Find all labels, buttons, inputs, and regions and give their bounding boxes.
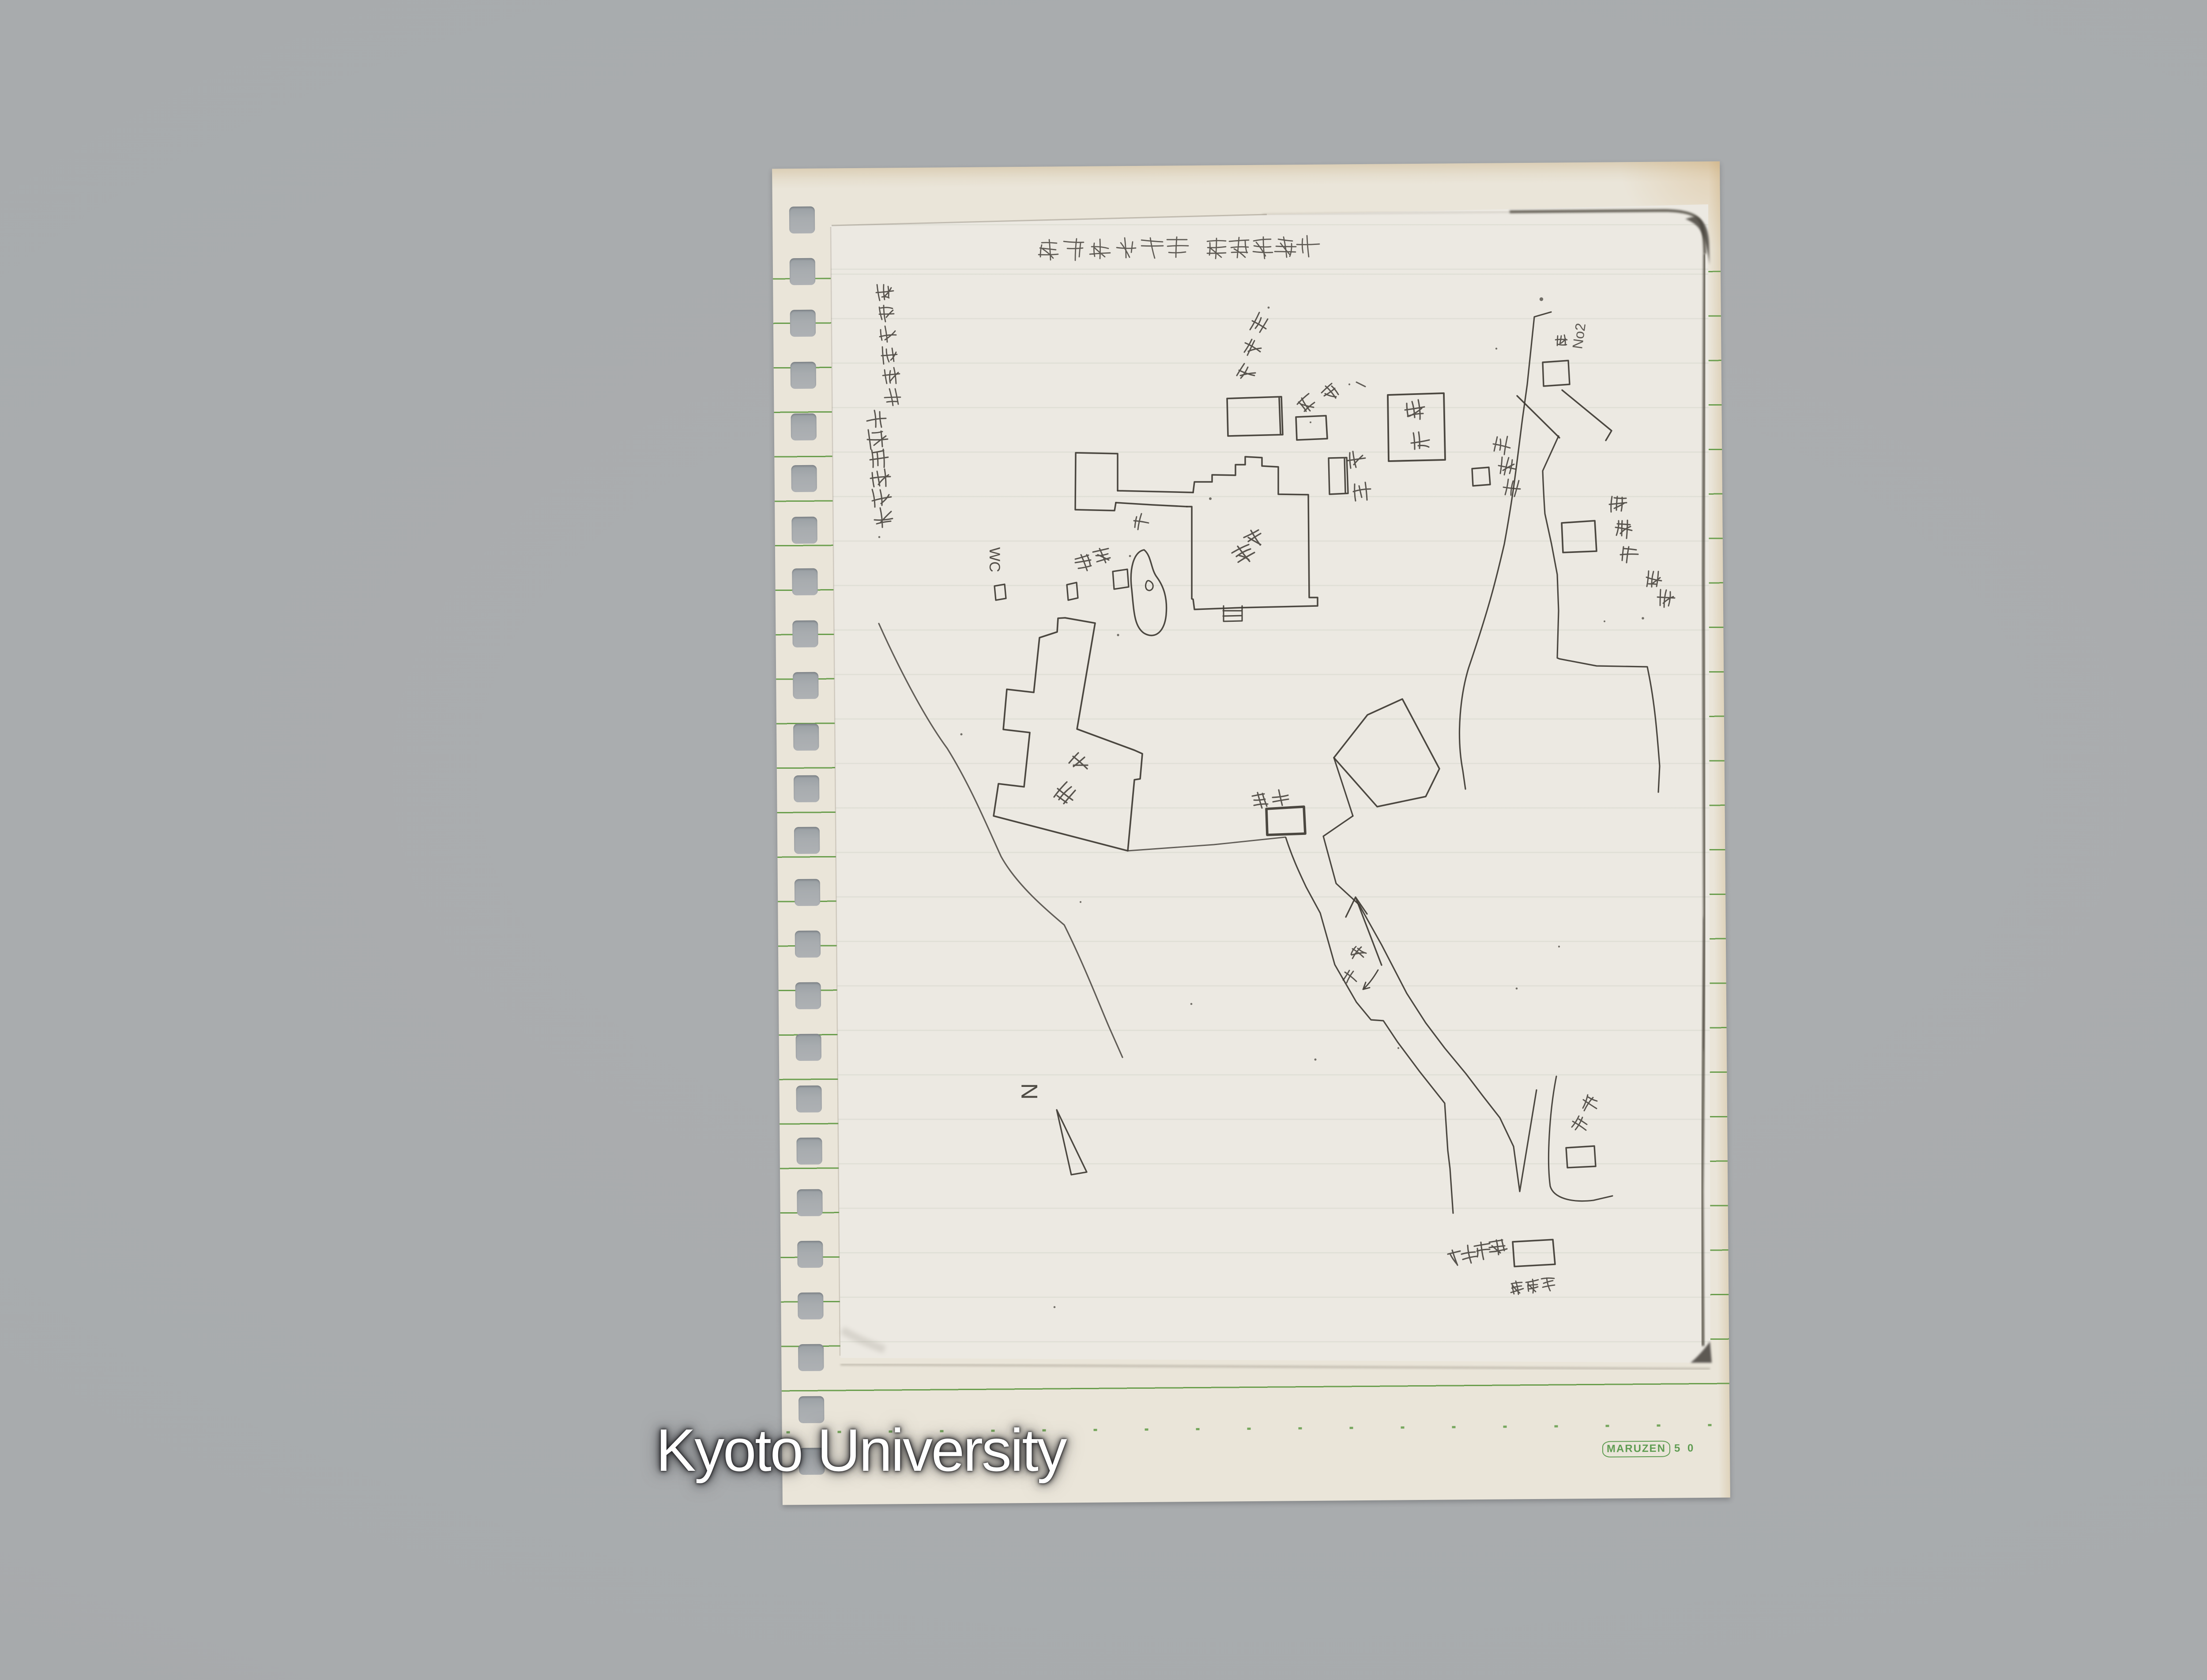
svg-text:WC: WC	[986, 547, 1003, 572]
svg-text:N: N	[1017, 1083, 1043, 1100]
svg-text:No2: No2	[1569, 322, 1589, 350]
